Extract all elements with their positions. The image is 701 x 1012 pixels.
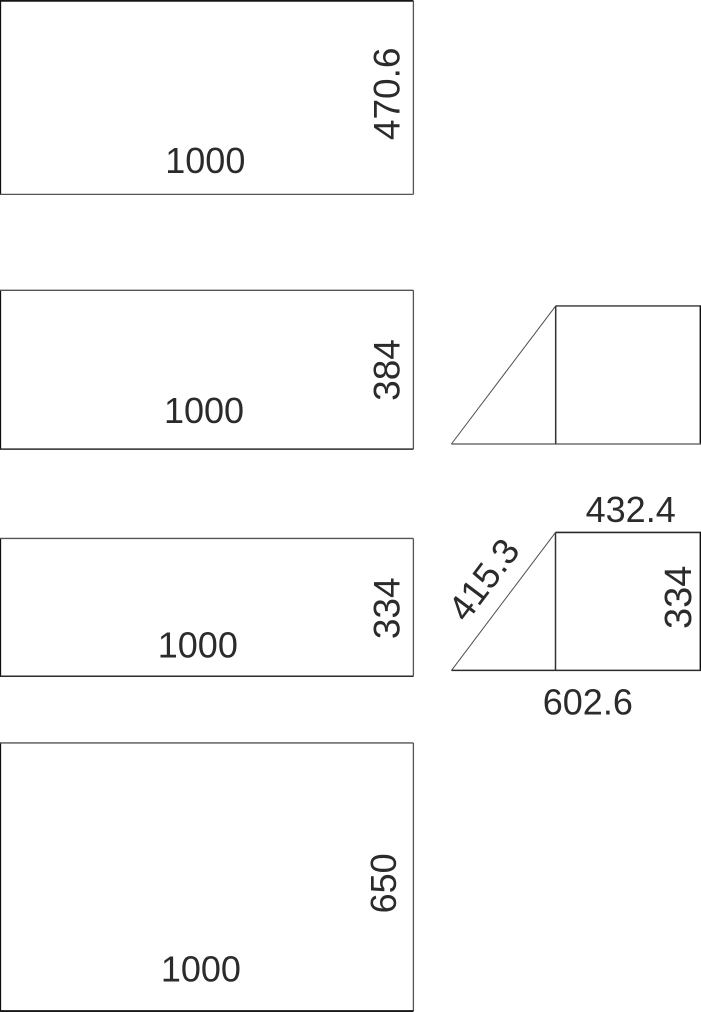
svg-text:1000: 1000 [158,624,238,665]
svg-text:384: 384 [366,339,407,401]
svg-text:432.4: 432.4 [586,489,676,530]
svg-text:1000: 1000 [164,390,244,431]
svg-text:650: 650 [363,853,404,913]
svg-text:602.6: 602.6 [543,682,633,723]
svg-text:470.6: 470.6 [366,48,407,141]
svg-text:1000: 1000 [161,948,241,989]
svg-text:334: 334 [366,577,407,639]
svg-text:1000: 1000 [165,140,245,181]
svg-text:334: 334 [658,566,700,629]
